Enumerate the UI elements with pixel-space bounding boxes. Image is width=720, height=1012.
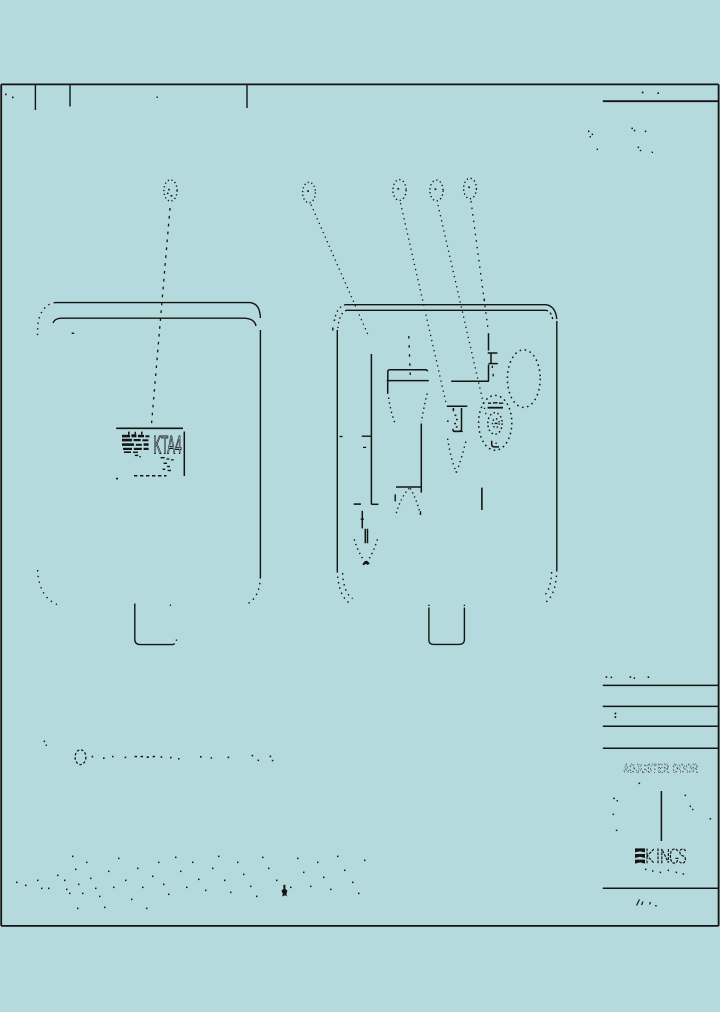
svg-text:ADJUSTER DOOR: ADJUSTER DOOR: [624, 762, 699, 776]
svg-text:KTA4: KTA4: [154, 432, 182, 460]
